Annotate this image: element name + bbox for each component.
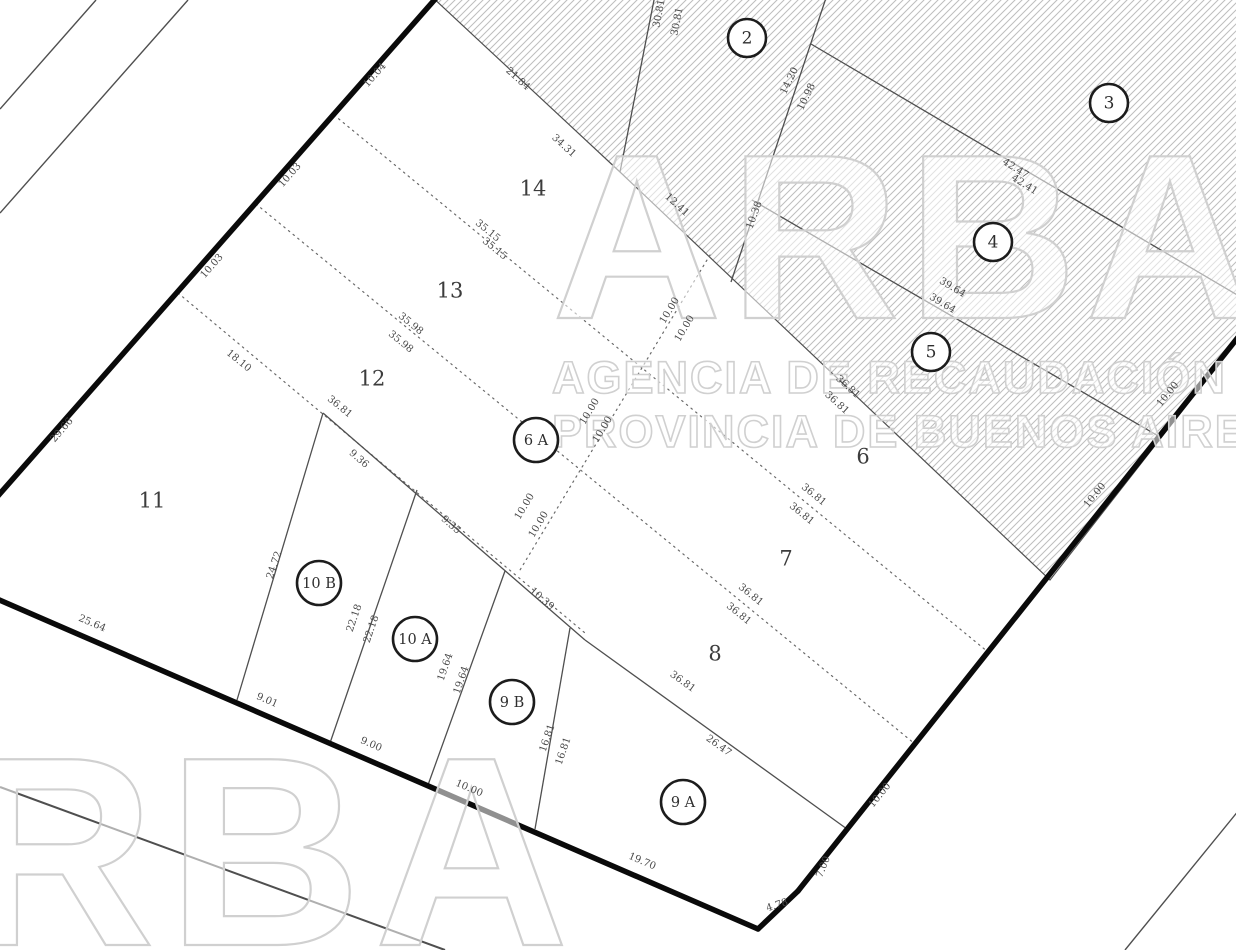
dimension-label: 36.81 [668,669,698,695]
parcel-circle-number: 4 [988,233,999,253]
parcel-circle: 4 [974,223,1012,261]
parcel-number: 11 [139,489,166,513]
dimension-label: 36.81 [787,501,816,528]
dimension-label: 36.81 [799,482,828,509]
watermark-agency-line1: AGENCIA DE RECAUDACIÓN [552,352,1227,403]
dimension-label: 36.81 [736,582,765,609]
parcel-number: 8 [708,642,721,666]
parcel-number: 6 [856,445,869,469]
street-line [0,0,96,109]
parcel-boundary-line [585,640,847,829]
dimension-label: 36.81 [325,394,354,421]
dimension-label: 19.64 [436,652,456,683]
parcel-number: 13 [437,279,464,303]
dimension-label: 36.81 [724,601,753,628]
dimension-label: 9.35 [439,514,463,537]
parcel-circle: 10 A [393,617,437,661]
dimension-label: 10.39 [527,586,556,613]
parcel-number: 12 [359,367,386,391]
parcel-circle: 2 [728,19,766,57]
parcel-circle: 6 A [514,418,558,462]
parcel-circle-number: 6 A [524,433,549,449]
dimension-label: 24.72 [265,550,285,581]
dimension-label: 7.00 [814,855,833,880]
cadastral-parcel-map: ARBAAGENCIA DE RECAUDACIÓNPROVINCIA DE B… [0,0,1236,950]
dimension-label: 22.18 [345,603,365,634]
parcel-circle-number: 5 [926,343,937,363]
watermark-arba-partial: RBA [0,702,581,950]
parcel-circle-number: 3 [1104,94,1115,114]
dimension-label: 35.98 [386,329,415,356]
cadastral-map-viewport: ARBAAGENCIA DE RECAUDACIÓNPROVINCIA DE B… [0,0,1236,950]
parcel-number: 7 [779,547,792,571]
dimension-label: 35.98 [396,311,425,338]
parcel-number: 14 [520,177,547,201]
dimension-label: 10.00 [527,510,551,540]
parcel-circle: 3 [1090,84,1128,122]
parcel-circle-number: 9 B [500,695,525,711]
dimension-label: 10.00 [513,492,537,522]
parcel-circle-number: 9 A [671,795,696,811]
street-line [0,0,188,213]
dimension-label: 19.64 [452,665,472,696]
dimension-label: 22.18 [362,614,382,645]
parcel-circle: 5 [912,333,950,371]
parcel-circle-number: 10 B [302,576,336,592]
parcel-circle-number: 10 A [398,632,432,648]
street-line [1125,810,1236,950]
parcel-circle: 10 B [297,561,341,605]
parcel-circle-number: 2 [742,29,753,49]
watermark-agency-line2: PROVINCIA DE BUENOS AIRES [552,406,1236,457]
parcel-circle: 9 A [661,780,705,824]
watermark-arba-logo: ARBA [552,105,1236,368]
dimension-label: 25.64 [77,613,108,634]
dimension-label: 19.70 [627,851,658,872]
parcel-circle: 9 B [490,680,534,724]
